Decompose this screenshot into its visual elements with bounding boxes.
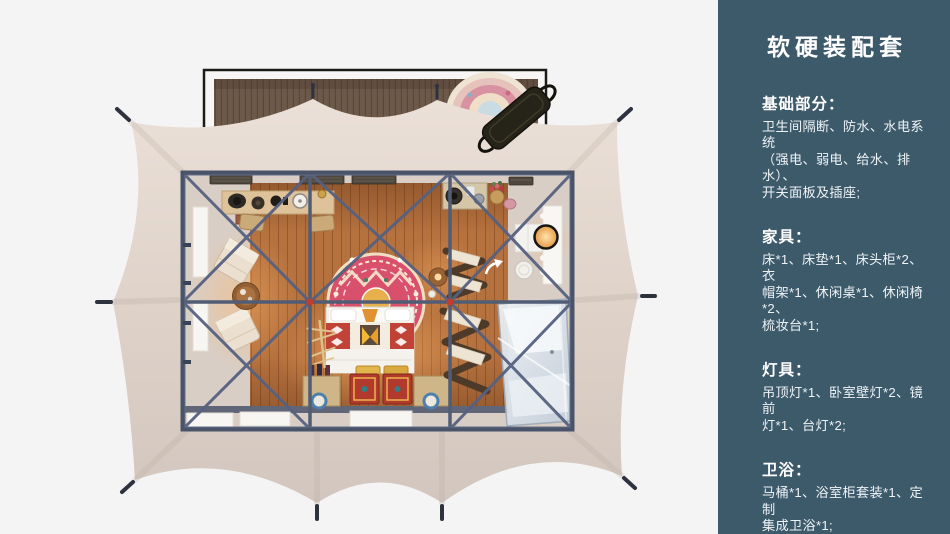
section-heading: 灯具： xyxy=(762,358,936,380)
floor-plate xyxy=(183,406,508,413)
section-bathroom: 卫浴： 马桶*1、浴室柜套装*1、定制 集成卫浴*1; xyxy=(762,458,936,534)
panel-sections: 基础部分： 卫生间隔断、防水、水电系统 （强电、弱电、给水、排水）、 开关面板及… xyxy=(762,92,936,534)
section-body: 吊顶灯*1、卧室壁灯*2、镜前 灯*1、台灯*2; xyxy=(762,385,936,434)
section-heading: 卫浴： xyxy=(762,458,936,480)
double-bed xyxy=(326,307,414,373)
room xyxy=(183,173,572,429)
section-body: 卫生间隔断、防水、水电系统 （强电、弱电、给水、排水）、 开关面板及插座; xyxy=(762,119,936,201)
page: 软硬装配套 基础部分： 卫生间隔断、防水、水电系统 （强电、弱电、给水、排水）、… xyxy=(0,0,950,534)
frame-connector xyxy=(307,299,314,306)
section-lighting: 灯具： 吊顶灯*1、卧室壁灯*2、镜前 灯*1、台灯*2; xyxy=(762,358,936,434)
info-panel: 软硬装配套 基础部分： 卫生间隔断、防水、水电系统 （强电、弱电、给水、排水）、… xyxy=(718,0,950,534)
panel-title: 软硬装配套 xyxy=(734,28,940,62)
round-mirror xyxy=(535,226,558,249)
section-body: 床*1、床垫*1、床头柜*2、衣 帽架*1、休闲桌*1、休闲椅*2、 梳妆台*1… xyxy=(762,252,936,334)
floorplan-svg xyxy=(0,0,718,534)
frame-connector xyxy=(447,299,454,306)
section-heading: 家具： xyxy=(762,225,936,247)
section-body: 马桶*1、浴室柜套装*1、定制 集成卫浴*1; xyxy=(762,485,936,534)
round-side-table xyxy=(233,283,260,310)
section-furniture: 家具： 床*1、床垫*1、床头柜*2、衣 帽架*1、休闲桌*1、休闲椅*2、 梳… xyxy=(762,225,936,334)
vanity-stool xyxy=(515,261,533,279)
section-basics: 基础部分： 卫生间隔断、防水、水电系统 （强电、弱电、给水、排水）、 开关面板及… xyxy=(762,92,936,201)
section-heading: 基础部分： xyxy=(762,92,936,114)
